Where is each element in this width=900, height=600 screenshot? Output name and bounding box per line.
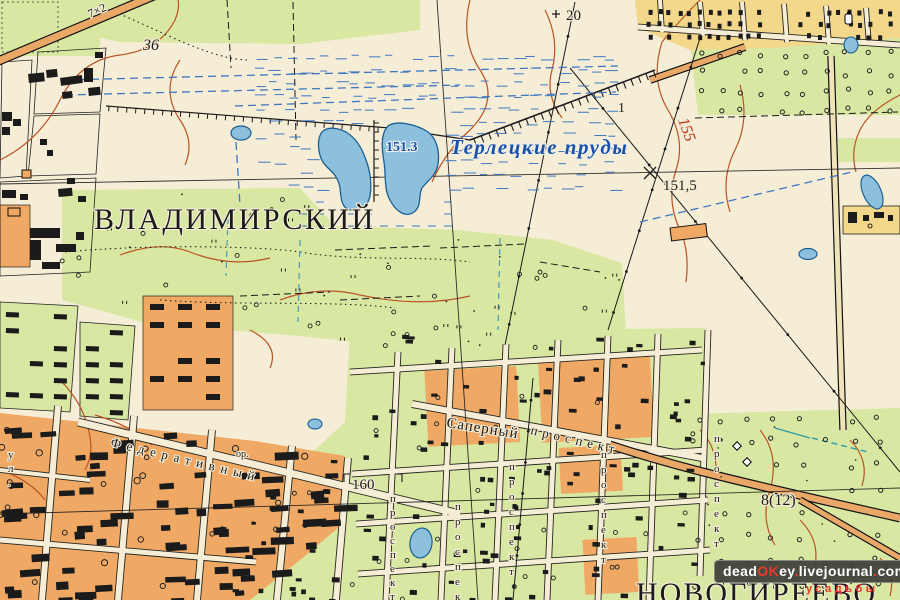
road-width-label-bottom: 8(12)	[761, 492, 796, 509]
topographic-map: 36 7×2 20 1 Терлецкие пруды 151.3 151,5 …	[0, 0, 900, 600]
elevation-160-label: 160	[352, 477, 375, 493]
watermark: deadOKey.livejournal.com	[714, 560, 900, 583]
water-elevation-label: 151.3	[386, 140, 418, 155]
map-canvas: 36 7×2 20 1 Терлецкие пруды 151.3 151,5 …	[0, 0, 900, 600]
powerline-voltage-label: 20	[566, 8, 581, 24]
elevation-36-label: 36	[142, 37, 159, 54]
district-name-label: ВЛАДИМИРСКИЙ	[94, 203, 376, 236]
spot-height-label: 151,5	[663, 178, 697, 194]
ponds-name-label: Терлецкие пруды	[450, 135, 628, 159]
embankment-label: 1	[618, 101, 625, 116]
greenhouse-abbrev-label: ор.	[236, 449, 249, 460]
watermark-caption: усадьбы	[806, 583, 879, 595]
